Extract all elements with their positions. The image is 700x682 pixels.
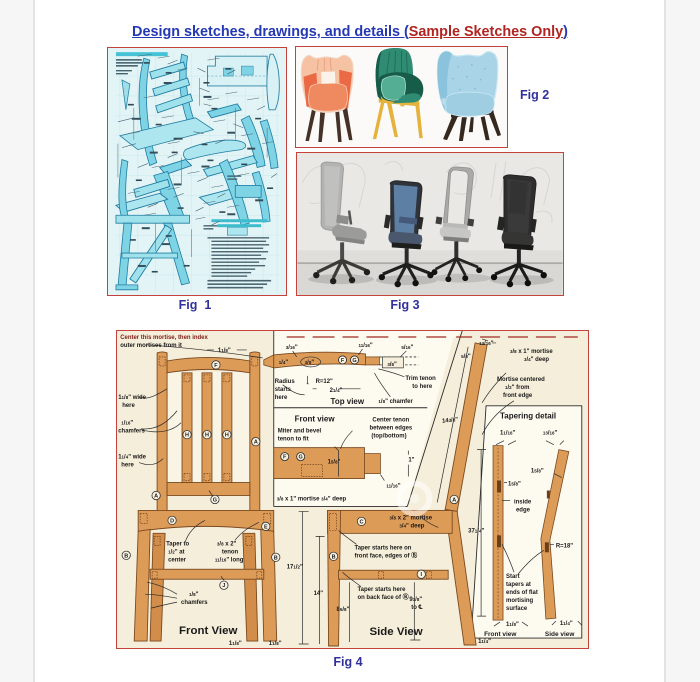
svg-text:front edge: front edge	[503, 393, 533, 399]
svg-text:G: G	[352, 358, 356, 364]
svg-text:Front View: Front View	[179, 625, 237, 637]
svg-text:15/8": 15/8"	[508, 482, 521, 488]
svg-text:H: H	[185, 433, 189, 439]
svg-text:A: A	[254, 440, 258, 446]
svg-text:3/8 x 2": 3/8 x 2"	[217, 541, 237, 547]
svg-text:Top view: Top view	[331, 397, 365, 406]
svg-text:G: G	[213, 497, 217, 503]
svg-text:B: B	[274, 555, 278, 561]
svg-text:mortising: mortising	[506, 598, 534, 604]
svg-text:11/4": 11/4"	[560, 621, 573, 627]
svg-text:here: here	[121, 463, 134, 469]
svg-text:Side view: Side view	[545, 631, 575, 638]
svg-text:G: G	[299, 455, 303, 461]
svg-text:Radius: Radius	[275, 379, 296, 385]
svg-text:Trim tenon: Trim tenon	[405, 376, 436, 382]
svg-text:11/8": 11/8"	[269, 641, 282, 647]
svg-text:starts: starts	[275, 387, 292, 393]
svg-text:Front view: Front view	[484, 631, 517, 638]
svg-text:Miter and bevel: Miter and bevel	[278, 429, 322, 435]
svg-text:11/4": 11/4"	[478, 639, 491, 645]
svg-text:C: C	[359, 519, 363, 525]
svg-text:1/2" from: 1/2" from	[505, 385, 529, 391]
svg-text:tenon to fit: tenon to fit	[278, 437, 309, 443]
svg-text:center: center	[168, 557, 187, 563]
svg-text:inside: inside	[514, 499, 532, 505]
svg-text:Side View: Side View	[369, 626, 422, 638]
svg-text:Taper starts here on: Taper starts here on	[354, 545, 411, 551]
svg-text:3/4" deep: 3/4" deep	[524, 357, 549, 363]
svg-text:11/8": 11/8"	[506, 622, 519, 628]
svg-text:3/4" deep: 3/4" deep	[399, 523, 424, 529]
svg-text:on back face of Ⓑ: on back face of Ⓑ	[357, 593, 408, 601]
svg-text:B: B	[124, 553, 128, 559]
svg-text:371/4": 371/4"	[468, 528, 484, 534]
svg-text:R=18": R=18"	[556, 543, 573, 549]
svg-text:Front view: Front view	[295, 415, 336, 424]
svg-text:Start: Start	[506, 574, 520, 580]
svg-text:Center this mortise, then inde: Center this mortise, then index	[120, 335, 208, 341]
svg-text:here: here	[122, 403, 135, 409]
svg-text:front face, edges of Ⓑ: front face, edges of Ⓑ	[354, 551, 417, 559]
svg-text:ends of flat: ends of flat	[506, 590, 538, 596]
svg-text:11/16" long: 11/16" long	[215, 557, 244, 563]
svg-text:(top/bottom): (top/bottom)	[371, 434, 406, 440]
svg-text:Taper starts here: Taper starts here	[357, 587, 406, 593]
svg-text:D: D	[170, 518, 174, 524]
svg-text:tenon: tenon	[222, 549, 239, 555]
svg-text:to ℄: to ℄	[411, 604, 422, 611]
svg-text:Taper to: Taper to	[166, 541, 189, 547]
svg-text:H: H	[225, 433, 229, 439]
svg-text:3/8 x 2" mortise: 3/8 x 2" mortise	[389, 515, 432, 521]
svg-text:between edges: between edges	[369, 426, 412, 432]
svg-text:A: A	[154, 493, 158, 499]
svg-text:3/8 x 1" mortise: 3/8 x 1" mortise	[510, 349, 553, 355]
svg-text:to here: to here	[412, 384, 433, 390]
svg-text:surface: surface	[506, 606, 528, 612]
svg-text:R=12": R=12"	[316, 379, 333, 385]
svg-text:93/8": 93/8"	[409, 597, 422, 603]
svg-text:B: B	[332, 554, 336, 560]
svg-text:85/8": 85/8"	[337, 607, 350, 613]
svg-text:J: J	[222, 583, 225, 589]
svg-text:here: here	[275, 395, 288, 401]
svg-text:E: E	[264, 524, 268, 530]
svg-text:H: H	[205, 433, 209, 439]
svg-text:11/8": 11/8"	[229, 641, 242, 647]
svg-text:1/2" at: 1/2" at	[168, 549, 184, 555]
svg-text:Center tenon: Center tenon	[372, 418, 409, 424]
svg-text:Tapering detail: Tapering detail	[500, 412, 556, 421]
svg-text:outer mortises from it: outer mortises from it	[120, 343, 182, 349]
svg-text:14": 14"	[314, 591, 324, 597]
svg-text:chamfers: chamfers	[181, 600, 208, 606]
svg-text:Mortise centered: Mortise centered	[497, 377, 545, 383]
svg-text:3/8 x 1" mortise 3/4" deep: 3/8 x 1" mortise 3/4" deep	[277, 496, 347, 502]
svg-text:edge: edge	[516, 507, 531, 513]
svg-text:A: A	[452, 497, 456, 503]
svg-text:15/8": 15/8"	[531, 469, 544, 475]
svg-text:1": 1"	[408, 458, 414, 464]
svg-text:tapers at: tapers at	[506, 582, 531, 588]
svg-text:171/2": 171/2"	[287, 564, 303, 570]
